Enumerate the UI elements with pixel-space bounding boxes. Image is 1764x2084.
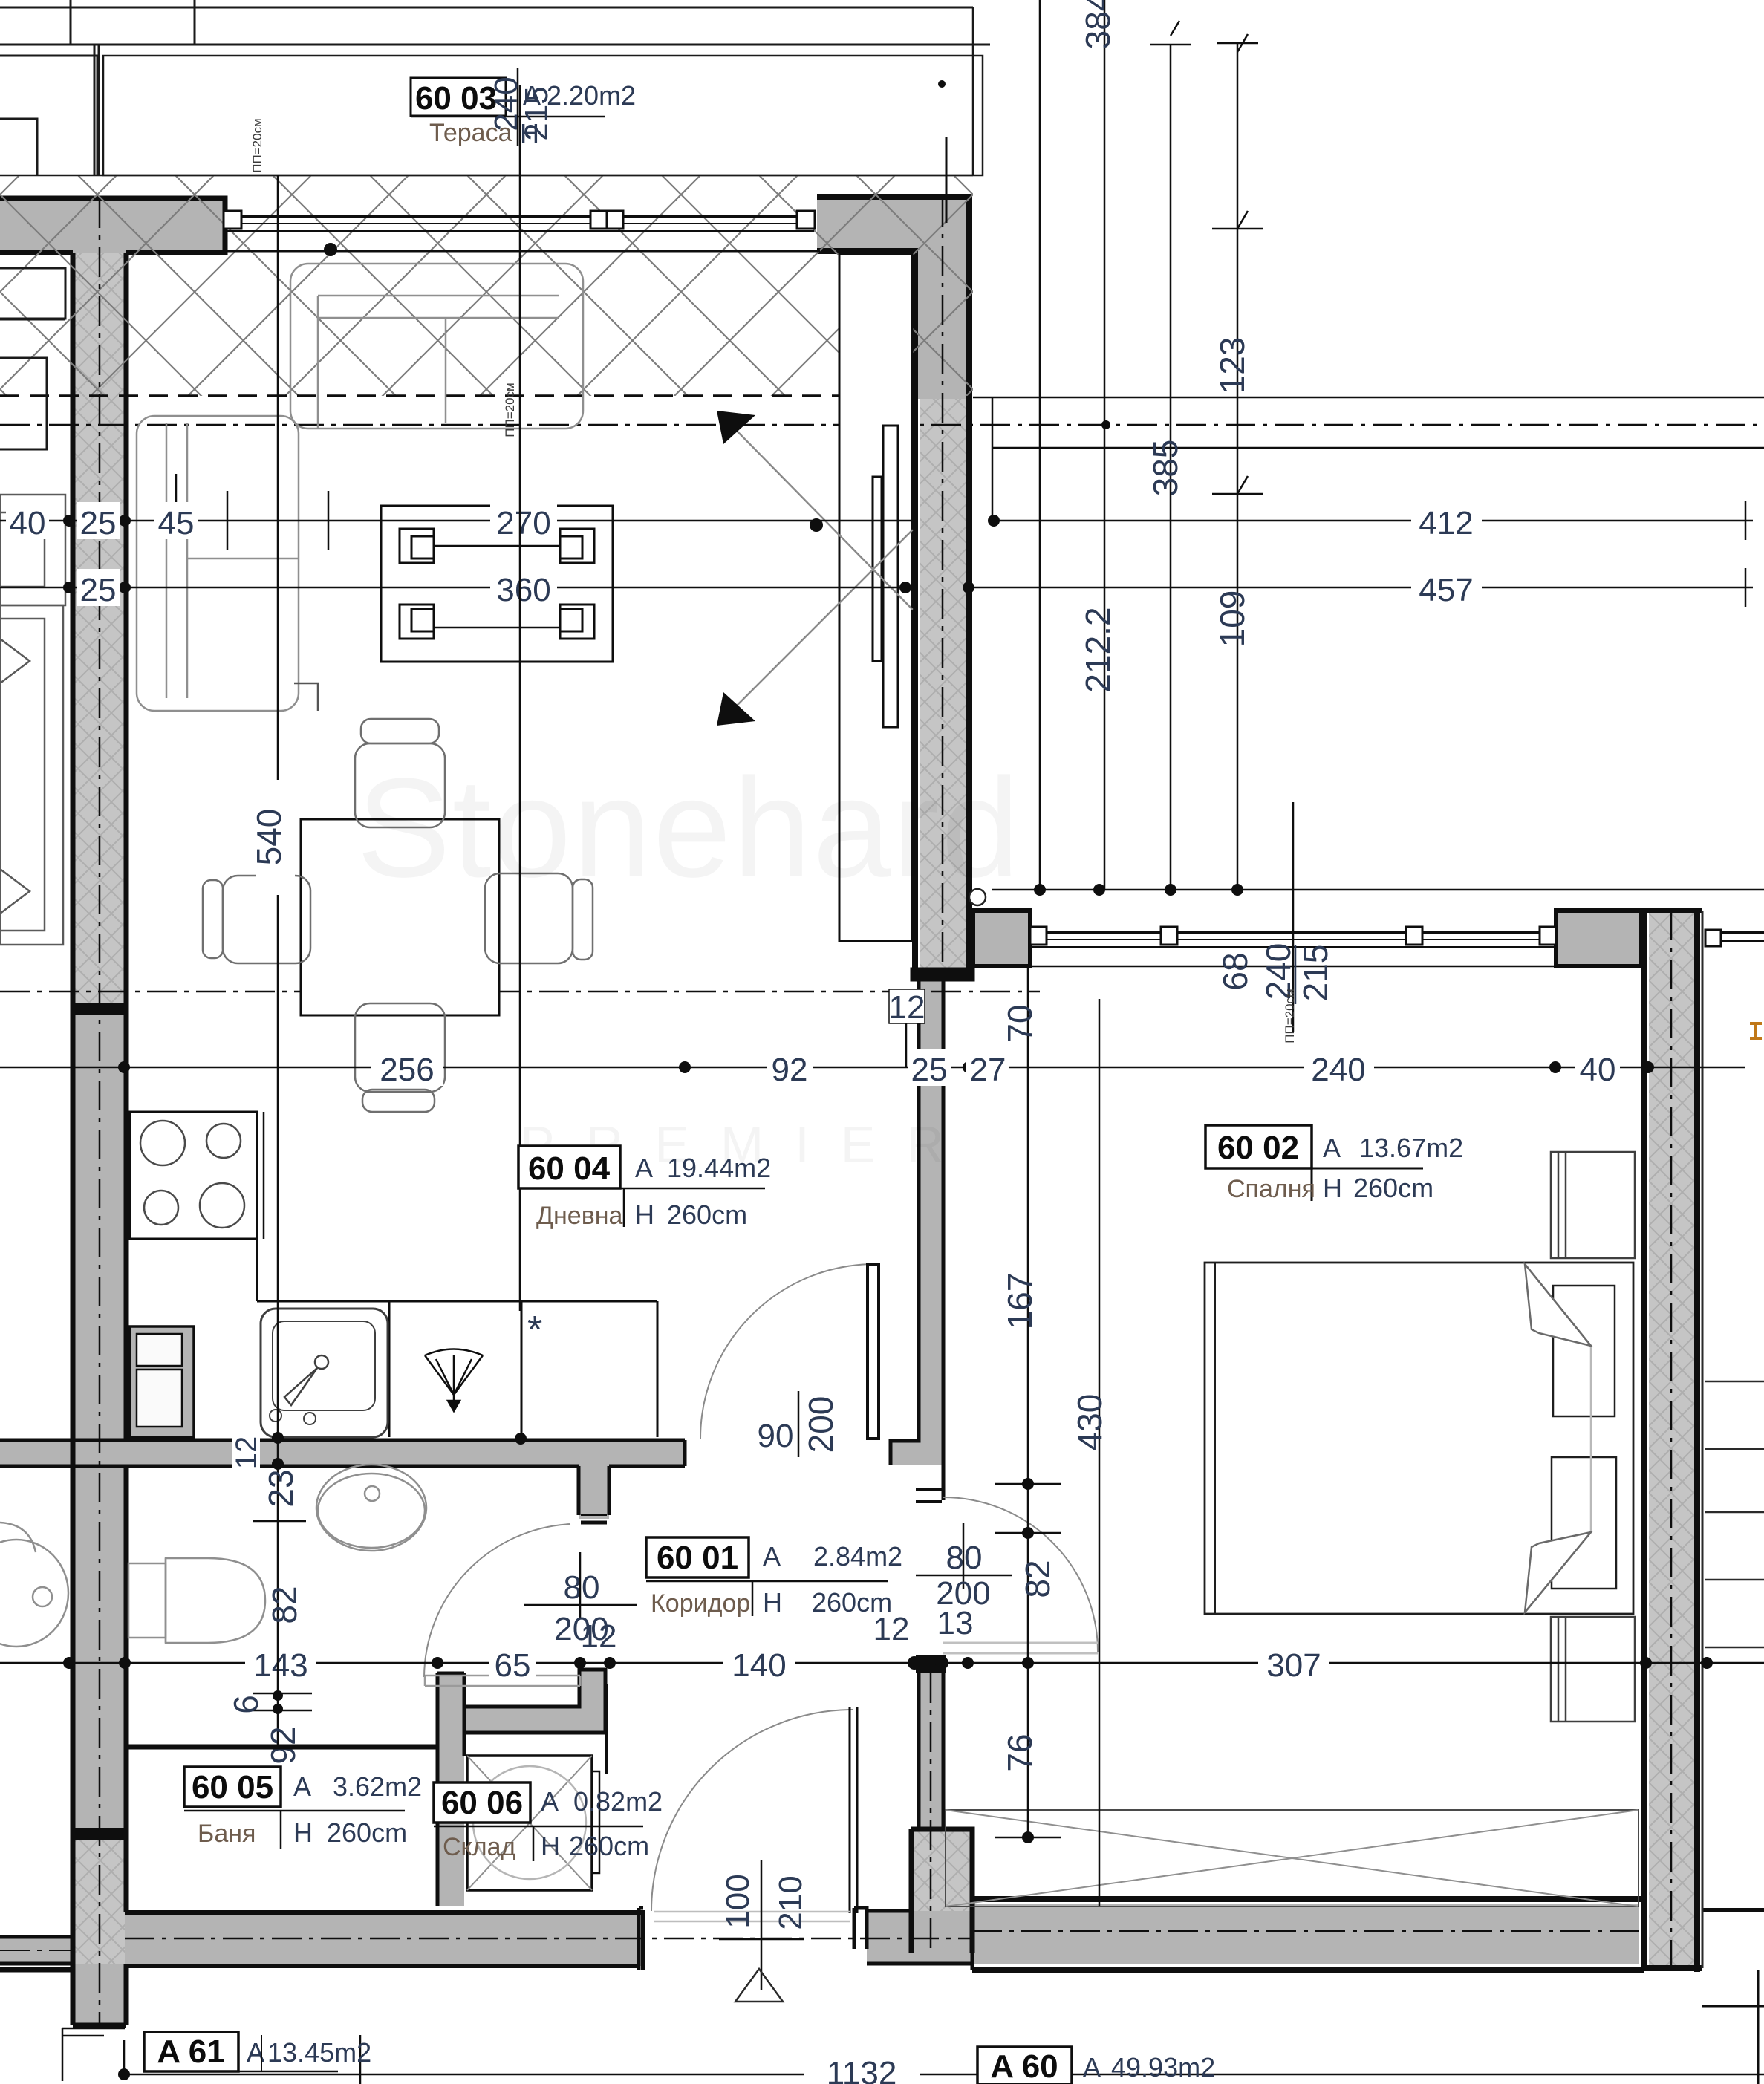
svg-text:25: 25 bbox=[911, 1052, 948, 1088]
svg-text:60 04: 60 04 bbox=[528, 1150, 611, 1187]
svg-text:6: 6 bbox=[227, 1695, 265, 1714]
svg-text:109: 109 bbox=[1213, 590, 1252, 648]
svg-text:40: 40 bbox=[10, 505, 46, 541]
svg-text:A 61: A 61 bbox=[157, 2033, 224, 2070]
svg-text:60 01: 60 01 bbox=[657, 1540, 738, 1576]
svg-text:12: 12 bbox=[230, 1436, 263, 1470]
svg-text:540: 540 bbox=[250, 809, 288, 866]
svg-text:49.93m2: 49.93m2 bbox=[1111, 2052, 1215, 2083]
svg-text:167: 167 bbox=[1000, 1273, 1039, 1330]
svg-text:ПП=20см: ПП=20см bbox=[250, 118, 264, 172]
svg-text:90: 90 bbox=[758, 1418, 794, 1454]
svg-text:A: A bbox=[635, 1153, 653, 1183]
svg-text:92: 92 bbox=[772, 1052, 808, 1088]
svg-text:ПП=20см: ПП=20см bbox=[1283, 989, 1297, 1043]
svg-text:260cm: 260cm bbox=[667, 1199, 747, 1230]
svg-text:385: 385 bbox=[1146, 440, 1185, 497]
svg-text:H: H bbox=[1323, 1173, 1342, 1203]
svg-text:430: 430 bbox=[1070, 1394, 1109, 1451]
svg-text:140: 140 bbox=[732, 1647, 786, 1684]
svg-text:*: * bbox=[527, 1309, 542, 1352]
svg-text:ПП=20см: ПП=20см bbox=[503, 382, 517, 437]
svg-text:200: 200 bbox=[554, 1611, 608, 1647]
svg-text:60 03: 60 03 bbox=[415, 80, 497, 117]
svg-text:13.45m2: 13.45m2 bbox=[267, 2037, 371, 2068]
svg-text:A: A bbox=[1323, 1133, 1341, 1163]
svg-text:A: A bbox=[541, 1786, 559, 1817]
svg-text:123: 123 bbox=[1213, 337, 1252, 394]
svg-text:76: 76 bbox=[1000, 1733, 1039, 1771]
svg-text:270: 270 bbox=[496, 505, 550, 541]
svg-text:457: 457 bbox=[1419, 572, 1473, 608]
svg-text:384: 384 bbox=[1078, 0, 1117, 49]
svg-text:60 05: 60 05 bbox=[192, 1769, 273, 1805]
svg-text:3.62m2: 3.62m2 bbox=[333, 1771, 422, 1802]
svg-text:100: 100 bbox=[720, 1874, 756, 1928]
svg-text:80: 80 bbox=[564, 1569, 600, 1606]
svg-text:A: A bbox=[763, 1541, 781, 1572]
svg-text:45: 45 bbox=[158, 505, 195, 541]
svg-text:200: 200 bbox=[801, 1396, 840, 1453]
svg-text:A: A bbox=[1083, 2052, 1101, 2083]
svg-text:Коридор: Коридор bbox=[651, 1589, 750, 1618]
svg-text:25: 25 bbox=[80, 505, 117, 541]
svg-text:Склад: Склад bbox=[443, 1833, 516, 1861]
svg-text:Stonehard: Stonehard bbox=[357, 749, 1021, 907]
svg-text:2.84m2: 2.84m2 bbox=[813, 1541, 902, 1572]
svg-text:2.20m2: 2.20m2 bbox=[547, 80, 636, 111]
svg-text:307: 307 bbox=[1266, 1647, 1321, 1684]
svg-text:60 06: 60 06 bbox=[441, 1785, 523, 1821]
svg-text:H: H bbox=[541, 1831, 560, 1861]
svg-text:1132: 1132 bbox=[827, 2055, 897, 2084]
svg-text:A: A bbox=[293, 1771, 311, 1802]
svg-text:H: H bbox=[635, 1199, 654, 1230]
svg-text:240: 240 bbox=[1311, 1052, 1365, 1088]
svg-text:68: 68 bbox=[1216, 952, 1254, 990]
svg-text:212.2: 212.2 bbox=[1078, 607, 1117, 692]
svg-text:260cm: 260cm bbox=[812, 1587, 892, 1618]
svg-text:13.67m2: 13.67m2 bbox=[1359, 1133, 1463, 1163]
svg-text:Дневна: Дневна bbox=[536, 1202, 623, 1230]
svg-text:60 02: 60 02 bbox=[1217, 1130, 1299, 1166]
svg-text:Спалня: Спалня bbox=[1227, 1175, 1315, 1203]
svg-text:H: H bbox=[763, 1587, 782, 1618]
svg-text:0.82m2: 0.82m2 bbox=[573, 1786, 663, 1817]
svg-text:A 60: A 60 bbox=[990, 2048, 1058, 2084]
svg-text:27: 27 bbox=[970, 1052, 1006, 1088]
svg-text:260cm: 260cm bbox=[327, 1817, 407, 1848]
svg-text:360: 360 bbox=[496, 572, 550, 608]
svg-text:143: 143 bbox=[253, 1647, 307, 1684]
svg-text:412: 412 bbox=[1419, 505, 1473, 541]
svg-text:200: 200 bbox=[936, 1575, 990, 1612]
svg-text:65: 65 bbox=[495, 1647, 531, 1684]
svg-text:H: H bbox=[293, 1817, 313, 1848]
svg-text:256: 256 bbox=[380, 1052, 434, 1088]
svg-text:40: 40 bbox=[1580, 1052, 1616, 1088]
svg-text:260cm: 260cm bbox=[1353, 1173, 1433, 1203]
svg-text:70: 70 bbox=[1000, 1004, 1039, 1042]
svg-text:210: 210 bbox=[772, 1875, 809, 1930]
svg-text:19.44m2: 19.44m2 bbox=[667, 1153, 771, 1183]
svg-text:23: 23 bbox=[261, 1469, 300, 1507]
svg-text:Баня: Баня bbox=[198, 1820, 256, 1848]
svg-text:12: 12 bbox=[889, 989, 925, 1026]
svg-text:260cm: 260cm bbox=[569, 1831, 649, 1861]
svg-text:215: 215 bbox=[518, 86, 555, 140]
svg-text:82: 82 bbox=[265, 1586, 304, 1624]
svg-text:215: 215 bbox=[1296, 945, 1335, 1002]
svg-text:82: 82 bbox=[1018, 1560, 1057, 1598]
svg-text:25: 25 bbox=[80, 572, 117, 608]
